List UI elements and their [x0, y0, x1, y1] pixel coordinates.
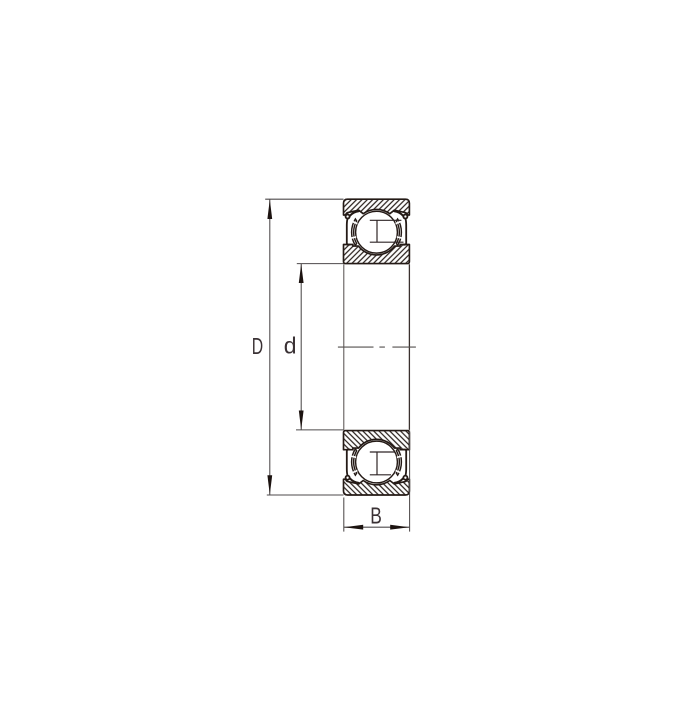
svg-text:B: B: [370, 502, 382, 528]
svg-text:d: d: [284, 333, 297, 359]
svg-text:D: D: [252, 333, 263, 359]
